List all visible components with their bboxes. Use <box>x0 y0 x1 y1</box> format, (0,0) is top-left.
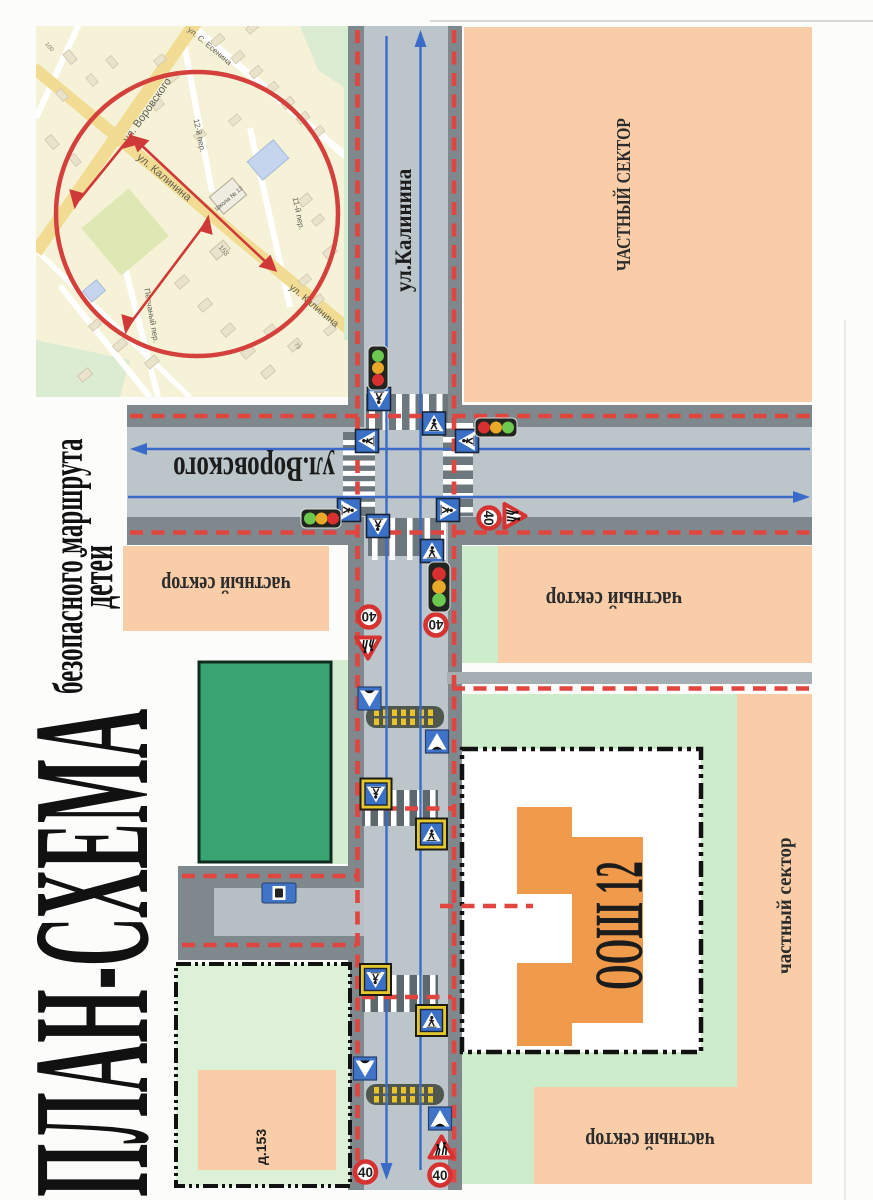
svg-text:ПЛАН-СХЕМА: ПЛАН-СХЕМА <box>0 709 184 1197</box>
svg-text:частный сектор: частный сектор <box>161 571 290 598</box>
svg-text:детей: детей <box>73 545 123 609</box>
svg-text:частный сектор: частный сектор <box>546 586 683 613</box>
svg-text:частный сектор: частный сектор <box>585 1127 714 1154</box>
svg-text:ул.Воровского: ул.Воровского <box>173 449 335 490</box>
svg-text:ООШ 12: ООШ 12 <box>581 861 658 990</box>
svg-text:частный сектор: частный сектор <box>773 837 796 974</box>
svg-text:ул.Калинина: ул.Калинина <box>390 169 416 292</box>
svg-text:д.153: д.153 <box>253 1129 269 1165</box>
svg-text:ЧАСТНЫЙ СЕКТОР: ЧАСТНЫЙ СЕКТОР <box>611 118 634 271</box>
